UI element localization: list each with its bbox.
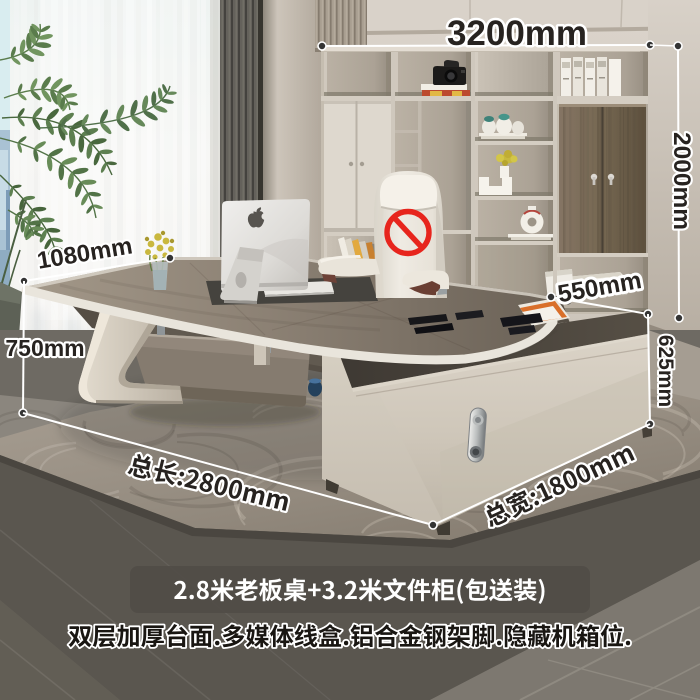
svg-text:750mm: 750mm (5, 335, 84, 361)
svg-text:625mm: 625mm (654, 335, 677, 407)
svg-text:3200mm: 3200mm (447, 14, 587, 53)
svg-text:2000mm: 2000mm (668, 132, 695, 230)
